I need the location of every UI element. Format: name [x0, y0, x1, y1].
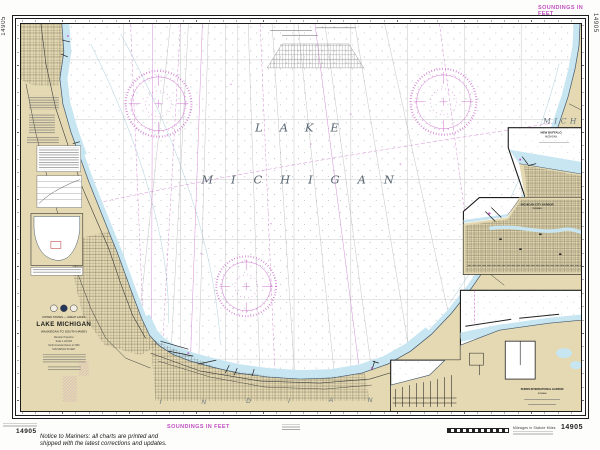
notice-line-1: Notice to Mariners: all charts are print… [40, 434, 167, 441]
corner-microtext [282, 424, 300, 432]
notice-line-2: shipped with the latest corrections and … [40, 441, 167, 448]
latitude-ticks-right [582, 25, 584, 409]
title-projection: Mercator Projection [53, 336, 73, 339]
map-area: LAKE MICHIGAN MICH I N D I A N [20, 23, 582, 412]
chart-number-bottom-left: 14905 [16, 428, 37, 435]
chart-subtitle: WAUKEGAN TO SOUTH HAVEN [40, 329, 86, 333]
inset-a-subtitle: MICHIGAN [545, 135, 557, 138]
marginal-table-2 [36, 175, 81, 207]
svg-text:D: D [246, 398, 251, 405]
inset-a-title: NEW BUFFALO [540, 130, 562, 134]
scale-bar-caption: Mileages in Statute Miles [513, 426, 563, 430]
inset-c-subtitle: INDIANA [537, 392, 546, 395]
chart-number-top-right: 14905 [592, 13, 598, 33]
chart-neatline-frame: LAKE MICHIGAN MICH I N D I A N [12, 15, 589, 419]
map-svg: LAKE MICHIGAN MICH I N D I A N [21, 24, 581, 411]
inset-b-title: MICHIGAN CITY HARBOR [520, 202, 553, 206]
lake-name-word1: LAKE [254, 120, 356, 134]
chart-number-bottom-right: 14905 [561, 424, 583, 431]
scale-bar-microtext [513, 431, 553, 435]
title-units: SOUNDINGS IN FEET [52, 349, 76, 351]
inset-b-subtitle: INDIANA [532, 207, 541, 210]
svg-text:N: N [201, 399, 206, 406]
inset-c-title: BURNS INTERNATIONAL HARBOR [520, 387, 563, 391]
svg-text:I: I [288, 398, 290, 405]
chart-number-top-left: 14905 [1, 16, 7, 36]
title-region: UNITED STATES — GREAT LAKES [42, 315, 86, 319]
marginal-table-1 [36, 145, 80, 171]
state-label-michigan: MICH [542, 116, 580, 125]
scale-bar [447, 428, 509, 433]
svg-text:N: N [367, 397, 372, 404]
svg-text:I: I [159, 399, 161, 406]
title-scale: Scale 1:120,000 [55, 341, 72, 343]
lake-name-word2: MICHIGAN [200, 172, 411, 186]
notice-to-mariners: Notice to Mariners: all charts are print… [40, 434, 167, 448]
inset-michigan-city: MICHIGAN CITY HARBOR INDIANA [463, 197, 581, 274]
svg-text:A: A [327, 397, 332, 404]
title-datum: North American Datum of 1983 [48, 344, 80, 347]
soundings-note-bottom: SOUNDINGS IN FEET [167, 424, 230, 430]
nautical-chart-page: 14905 SOUNDINGS IN FEET 14905 14905 SOUN… [0, 0, 600, 450]
longitude-ticks-bottom [22, 412, 579, 414]
chart-title: LAKE MICHIGAN [36, 321, 91, 328]
